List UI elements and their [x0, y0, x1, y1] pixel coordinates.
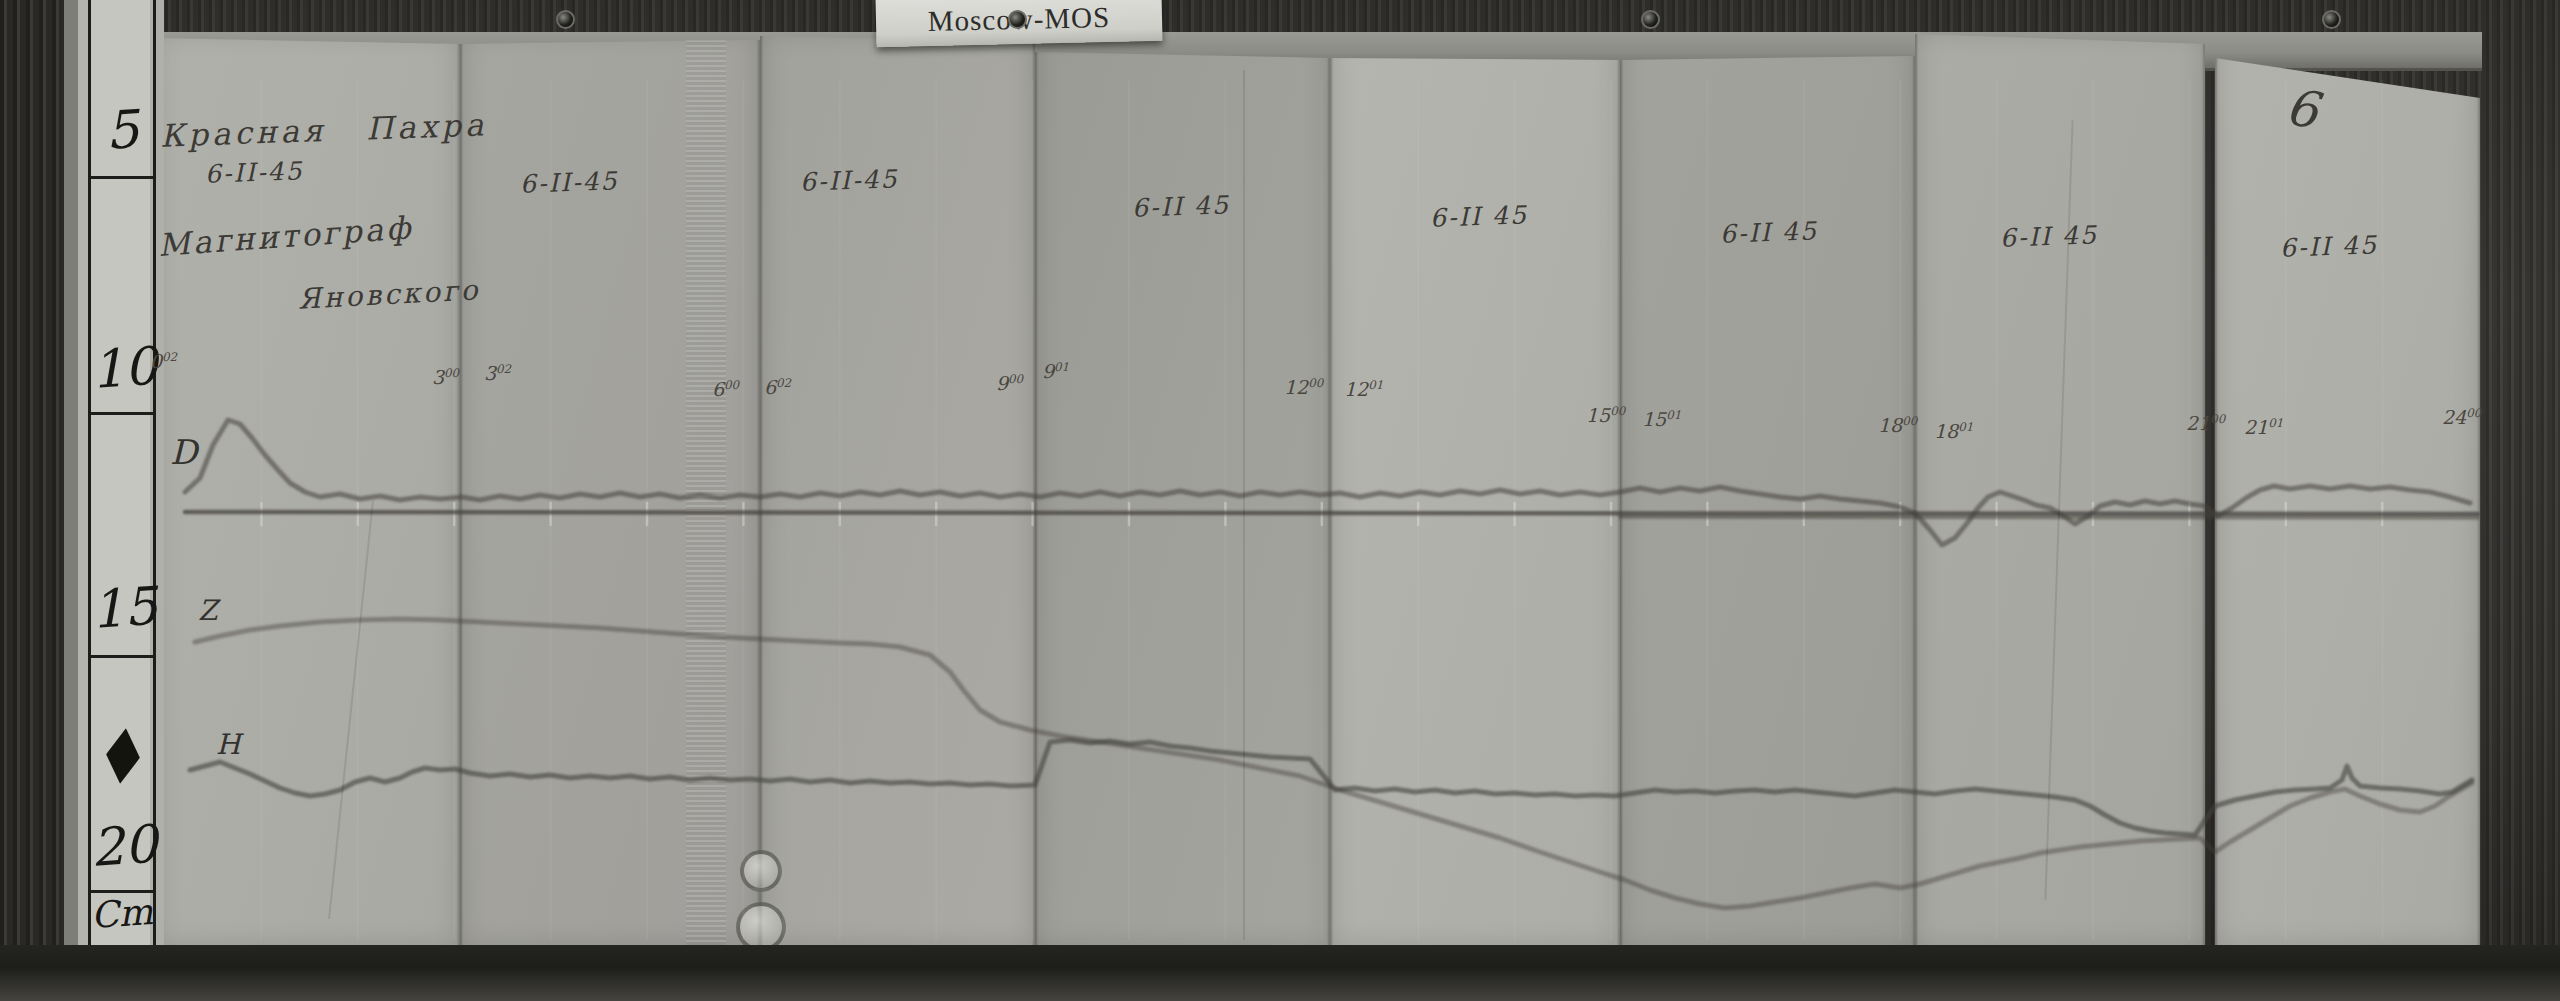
- time-mark-21h00: 2100: [2186, 412, 2225, 434]
- time-mark-18h01: 1801: [1934, 420, 1973, 442]
- ruler-mark-Cm: Cm: [90, 894, 154, 934]
- strip-date-6: 6-II 45: [1720, 216, 1819, 248]
- strip-date-7: 6-II 45: [2000, 220, 2099, 252]
- ruler-tick: [91, 655, 153, 658]
- time-mark-0h02: 002: [150, 350, 177, 372]
- trace-H: [190, 740, 2472, 835]
- magnetogram-photo: 5101520Cm Moscow-MOS Красная Пахра Магни…: [0, 0, 2560, 1001]
- screw-head: [2322, 10, 2341, 29]
- ruler-mark-10: 10: [89, 340, 154, 396]
- ruler-tick: [91, 890, 153, 893]
- cm-ruler-scale: 5101520Cm: [88, 0, 156, 948]
- trace-D: [185, 420, 2470, 545]
- ruler-tick: [91, 176, 153, 179]
- time-mark-12h01: 1201: [1344, 378, 1383, 400]
- trace-label-Z: Z: [198, 594, 217, 627]
- strip-date-5: 6-II 45: [1430, 200, 1529, 232]
- cm-ruler: 5101520Cm: [64, 0, 164, 948]
- paper-crease: [1243, 70, 1245, 940]
- strip-date-1: 6-II-45: [205, 156, 304, 188]
- screw-head: [1641, 10, 1660, 29]
- time-mark-3h02: 302: [484, 362, 511, 384]
- time-mark-12h00: 1200: [1284, 376, 1323, 398]
- time-mark-9h00: 900: [996, 372, 1023, 394]
- strip-date-3: 6-II-45: [800, 164, 899, 196]
- time-mark-3h00: 300: [432, 366, 459, 388]
- time-mark-18h00: 1800: [1878, 414, 1917, 436]
- trace-plot: [0, 0, 2560, 1001]
- trace-Z: [195, 619, 2472, 908]
- time-mark-6h00: 600: [712, 378, 739, 400]
- trace-label-D: D: [170, 432, 197, 472]
- trace-baseline: [185, 512, 2478, 514]
- time-mark-15h01: 1501: [1642, 408, 1681, 430]
- ruler-tick: [91, 412, 153, 415]
- ruler-mark-5: 5: [89, 102, 154, 158]
- time-mark-24h00: 2400: [2442, 406, 2481, 428]
- trace-baseline-overtrace: [1620, 517, 2478, 518]
- strip-date-8: 6-II 45: [2280, 230, 2379, 262]
- time-mark-15h00: 1500: [1586, 404, 1625, 426]
- ruler-diamond: [103, 726, 143, 785]
- screw-head: [1008, 10, 1027, 29]
- strip-date-4: 6-II 45: [1132, 190, 1231, 222]
- ruler-mark-20: 20: [89, 818, 154, 874]
- screw-head: [556, 10, 575, 29]
- bottom-shadow-band: [0, 945, 2560, 1001]
- time-mark-6h02: 602: [764, 376, 791, 398]
- time-mark-21h01: 2101: [2244, 416, 2283, 438]
- time-mark-9h01: 901: [1042, 360, 1069, 382]
- strip-date-2: 6-II-45: [520, 166, 619, 198]
- ruler-mark-15: 15: [89, 580, 154, 636]
- trace-label-H: H: [216, 728, 240, 761]
